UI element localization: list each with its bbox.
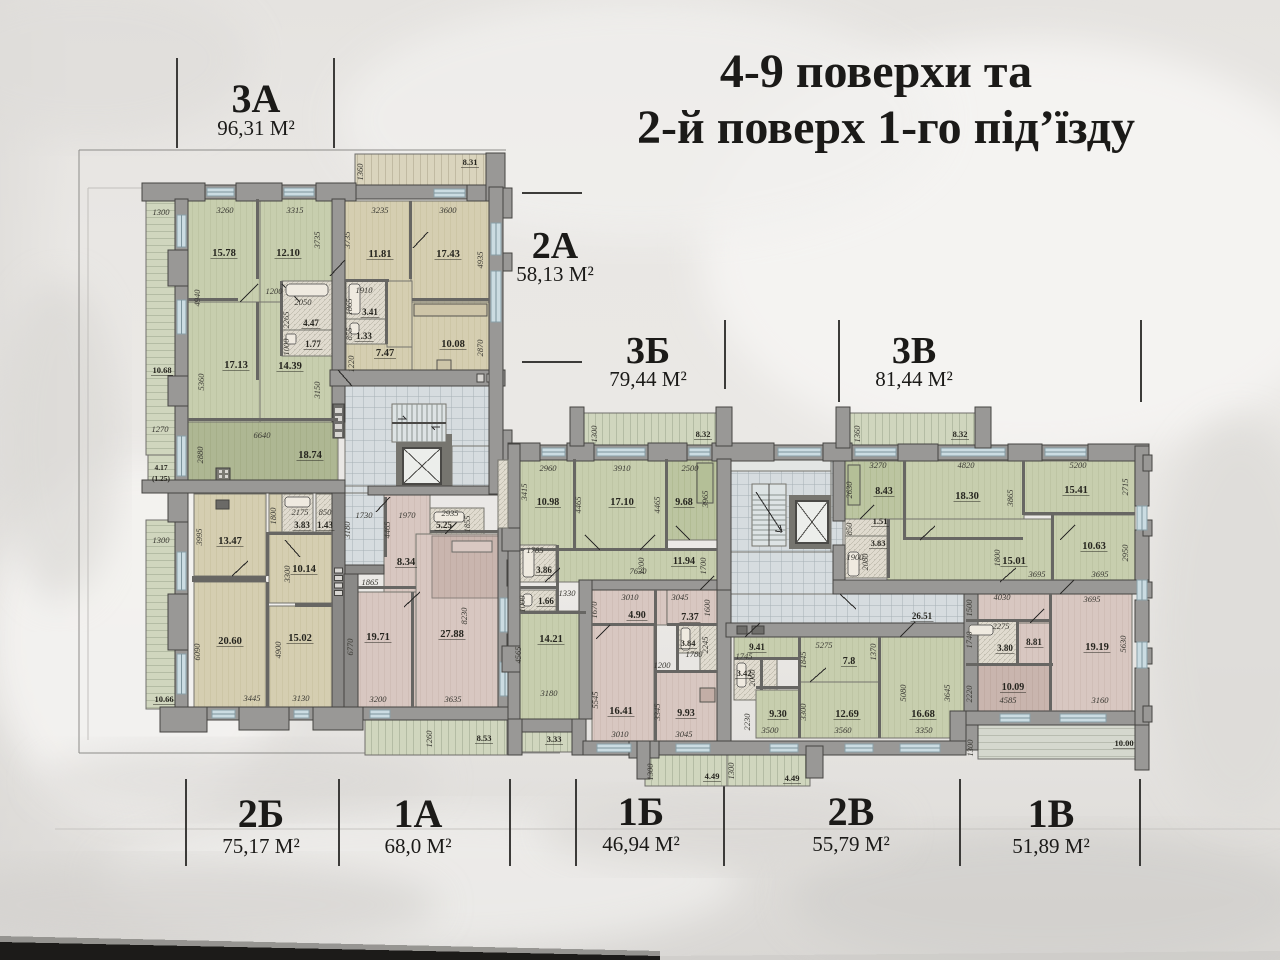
- svg-text:2245: 2245: [700, 637, 710, 654]
- svg-text:10.14: 10.14: [292, 564, 316, 575]
- svg-text:4465: 4465: [573, 497, 583, 514]
- svg-text:7.8: 7.8: [843, 656, 856, 667]
- svg-text:4.47: 4.47: [303, 318, 319, 328]
- svg-text:8.32: 8.32: [953, 429, 968, 439]
- svg-text:3010: 3010: [621, 592, 640, 602]
- svg-text:1670: 1670: [589, 601, 599, 619]
- svg-text:3180: 3180: [540, 688, 559, 698]
- svg-text:3350: 3350: [915, 725, 934, 735]
- svg-text:3695: 3695: [1091, 569, 1109, 579]
- svg-text:4935: 4935: [475, 252, 485, 269]
- svg-text:2060: 2060: [747, 669, 757, 687]
- svg-text:2880: 2880: [195, 446, 205, 464]
- svg-text:10.66: 10.66: [154, 694, 173, 704]
- svg-text:2-й поверх 1-го під’їзду: 2-й поверх 1-го під’їзду: [637, 101, 1135, 154]
- svg-text:12.10: 12.10: [276, 248, 300, 259]
- svg-text:10.09: 10.09: [1002, 682, 1025, 693]
- svg-text:7.37: 7.37: [681, 612, 699, 623]
- svg-text:68,0 М²: 68,0 М²: [385, 834, 452, 858]
- svg-text:5200: 5200: [1070, 460, 1088, 470]
- svg-text:2715: 2715: [1120, 479, 1130, 496]
- svg-text:1.51: 1.51: [873, 516, 888, 526]
- svg-text:4465: 4465: [382, 522, 392, 539]
- svg-text:1970: 1970: [399, 510, 417, 520]
- svg-text:18.74: 18.74: [298, 450, 322, 461]
- svg-text:17.10: 17.10: [610, 497, 634, 508]
- svg-text:8230: 8230: [459, 607, 469, 625]
- svg-text:5080: 5080: [898, 684, 908, 702]
- svg-text:1300: 1300: [726, 762, 736, 780]
- svg-text:20.60: 20.60: [218, 636, 242, 647]
- svg-text:3415: 3415: [519, 484, 529, 502]
- svg-text:3910: 3910: [613, 463, 632, 473]
- svg-text:(1.25): (1.25): [152, 474, 171, 483]
- svg-text:3А: 3А: [232, 76, 281, 121]
- svg-text:3150: 3150: [312, 381, 322, 400]
- svg-text:1.33: 1.33: [356, 331, 372, 341]
- svg-text:10.98: 10.98: [537, 497, 560, 508]
- svg-text:1200: 1200: [654, 660, 672, 670]
- svg-text:1000: 1000: [281, 338, 291, 356]
- svg-text:1700: 1700: [698, 557, 708, 575]
- svg-text:8.53: 8.53: [477, 733, 492, 743]
- svg-text:12.69: 12.69: [835, 709, 859, 720]
- svg-text:3635: 3635: [444, 694, 462, 704]
- svg-text:1300: 1300: [153, 207, 171, 217]
- svg-text:8.31: 8.31: [463, 157, 478, 167]
- svg-text:9.68: 9.68: [675, 497, 693, 508]
- svg-text:3735: 3735: [342, 232, 352, 250]
- svg-text:8.32: 8.32: [696, 429, 711, 439]
- svg-text:10.63: 10.63: [1082, 541, 1106, 552]
- svg-text:1370: 1370: [868, 643, 878, 661]
- svg-text:3695: 3695: [1028, 569, 1046, 579]
- svg-text:14.21: 14.21: [539, 634, 563, 645]
- svg-text:8.81: 8.81: [1026, 637, 1042, 647]
- svg-text:1800: 1800: [268, 507, 278, 525]
- svg-text:26.51: 26.51: [912, 611, 933, 621]
- svg-text:3735: 3735: [312, 232, 322, 250]
- svg-text:1.77: 1.77: [305, 339, 321, 349]
- svg-text:1200: 1200: [636, 557, 646, 575]
- svg-text:3300: 3300: [798, 703, 808, 722]
- svg-text:6640: 6640: [254, 430, 272, 440]
- svg-text:3965: 3965: [700, 491, 710, 509]
- svg-text:2950: 2950: [1120, 544, 1130, 562]
- svg-text:5360: 5360: [196, 373, 206, 391]
- svg-text:3695: 3695: [1083, 594, 1101, 604]
- svg-text:9.93: 9.93: [677, 708, 695, 719]
- svg-text:3.80: 3.80: [997, 643, 1013, 653]
- svg-text:4.49: 4.49: [705, 771, 720, 781]
- svg-text:27.88: 27.88: [440, 629, 464, 640]
- svg-text:1600: 1600: [702, 599, 712, 617]
- svg-text:850: 850: [844, 522, 854, 536]
- svg-text:10.08: 10.08: [441, 339, 465, 350]
- svg-text:1260: 1260: [424, 730, 434, 748]
- svg-text:15.78: 15.78: [212, 248, 236, 259]
- svg-text:3645: 3645: [942, 685, 952, 703]
- svg-text:9.30: 9.30: [769, 709, 787, 720]
- svg-text:3160: 3160: [1091, 695, 1110, 705]
- svg-text:4.90: 4.90: [628, 610, 646, 621]
- svg-text:4820: 4820: [958, 460, 976, 470]
- svg-text:19.19: 19.19: [1085, 642, 1109, 653]
- svg-text:10.00: 10.00: [1114, 738, 1133, 748]
- svg-text:3345: 3345: [652, 704, 662, 722]
- svg-text:1360: 1360: [852, 425, 862, 443]
- svg-text:81,44 М²: 81,44 М²: [875, 367, 952, 391]
- svg-text:58,13 М²: 58,13 М²: [516, 262, 593, 286]
- svg-text:3500: 3500: [761, 725, 780, 735]
- svg-text:1845: 1845: [798, 652, 808, 669]
- svg-text:2050: 2050: [295, 297, 313, 307]
- svg-text:1.66: 1.66: [538, 596, 554, 606]
- svg-text:51,89 М²: 51,89 М²: [1012, 834, 1089, 858]
- svg-text:4-9 поверхи та: 4-9 поверхи та: [720, 45, 1032, 98]
- svg-text:1745: 1745: [736, 651, 753, 661]
- svg-text:3010: 3010: [611, 729, 630, 739]
- svg-text:1740: 1740: [964, 631, 974, 649]
- svg-text:96,31 М²: 96,31 М²: [217, 116, 294, 140]
- svg-text:1300: 1300: [153, 535, 171, 545]
- svg-text:3Б: 3Б: [626, 330, 670, 372]
- svg-text:5.25: 5.25: [436, 520, 452, 530]
- svg-text:1330: 1330: [559, 588, 577, 598]
- svg-text:11.94: 11.94: [673, 556, 695, 567]
- svg-text:1300: 1300: [965, 739, 975, 757]
- svg-text:5545: 5545: [590, 692, 600, 709]
- svg-text:2220: 2220: [964, 685, 974, 703]
- svg-text:4900: 4900: [273, 641, 283, 659]
- svg-text:2080: 2080: [860, 553, 870, 571]
- svg-text:4465: 4465: [652, 497, 662, 514]
- svg-text:55,79 М²: 55,79 М²: [812, 832, 889, 856]
- svg-text:6770: 6770: [345, 638, 355, 656]
- svg-text:1220: 1220: [346, 355, 356, 373]
- svg-text:3.83: 3.83: [871, 538, 886, 548]
- svg-text:1855: 1855: [462, 516, 472, 533]
- svg-text:15.01: 15.01: [1002, 556, 1026, 567]
- svg-text:855: 855: [344, 328, 354, 341]
- svg-text:1.43: 1.43: [317, 520, 333, 530]
- svg-text:11.81: 11.81: [368, 249, 391, 260]
- svg-text:1730: 1730: [356, 510, 374, 520]
- svg-text:4940: 4940: [192, 289, 202, 307]
- svg-text:3270: 3270: [869, 460, 888, 470]
- svg-text:1300: 1300: [645, 763, 655, 781]
- svg-text:3235: 3235: [371, 205, 389, 215]
- svg-text:3200: 3200: [369, 694, 388, 704]
- svg-text:1300: 1300: [589, 425, 599, 443]
- svg-text:16.68: 16.68: [911, 709, 935, 720]
- svg-text:2265: 2265: [281, 312, 291, 329]
- svg-text:850: 850: [319, 507, 333, 517]
- svg-text:75,17 М²: 75,17 М²: [222, 834, 299, 858]
- svg-text:3.83: 3.83: [294, 520, 310, 530]
- svg-text:2А: 2А: [532, 225, 579, 267]
- svg-text:3.84: 3.84: [681, 638, 697, 648]
- svg-text:46,94 М²: 46,94 М²: [602, 832, 679, 856]
- svg-text:3560: 3560: [834, 725, 853, 735]
- svg-text:15.02: 15.02: [288, 633, 312, 644]
- svg-text:4030: 4030: [994, 592, 1012, 602]
- svg-text:3445: 3445: [243, 693, 261, 703]
- svg-text:16.41: 16.41: [609, 706, 633, 717]
- svg-text:5275: 5275: [816, 640, 833, 650]
- svg-text:15.41: 15.41: [1064, 485, 1088, 496]
- svg-text:1500: 1500: [964, 599, 974, 617]
- svg-text:3.41: 3.41: [362, 307, 378, 317]
- svg-text:1200: 1200: [266, 286, 284, 296]
- svg-text:2500: 2500: [682, 463, 700, 473]
- svg-text:2230: 2230: [742, 713, 752, 731]
- svg-text:4.49: 4.49: [785, 773, 800, 783]
- svg-text:2275: 2275: [993, 621, 1010, 631]
- svg-text:2960: 2960: [540, 463, 558, 473]
- svg-text:3995: 3995: [194, 529, 204, 547]
- svg-text:18.30: 18.30: [955, 491, 979, 502]
- svg-text:17.13: 17.13: [224, 360, 248, 371]
- svg-text:3.86: 3.86: [536, 565, 552, 575]
- svg-text:2870: 2870: [475, 339, 485, 357]
- svg-text:3В: 3В: [892, 330, 936, 372]
- svg-text:1865: 1865: [362, 577, 379, 587]
- svg-text:2Б: 2Б: [238, 791, 284, 836]
- svg-text:14.39: 14.39: [278, 361, 302, 372]
- svg-text:5630: 5630: [1118, 635, 1128, 653]
- svg-text:19.71: 19.71: [366, 632, 390, 643]
- svg-text:13.47: 13.47: [218, 536, 242, 547]
- svg-text:2630: 2630: [844, 481, 854, 499]
- svg-text:3865: 3865: [1005, 490, 1015, 508]
- svg-text:1Б: 1Б: [618, 789, 664, 834]
- svg-text:4585: 4585: [1000, 695, 1017, 705]
- svg-text:3045: 3045: [675, 729, 693, 739]
- svg-text:1910: 1910: [356, 285, 374, 295]
- svg-text:4.17: 4.17: [154, 463, 167, 472]
- svg-text:4565: 4565: [513, 647, 523, 664]
- svg-text:2935: 2935: [442, 508, 459, 518]
- svg-text:6090: 6090: [192, 643, 202, 661]
- svg-text:2В: 2В: [828, 789, 875, 834]
- svg-text:1800: 1800: [992, 549, 1002, 567]
- svg-text:79,44 М²: 79,44 М²: [609, 367, 686, 391]
- svg-text:1В: 1В: [1028, 791, 1075, 836]
- svg-text:3130: 3130: [292, 693, 311, 703]
- svg-text:8.43: 8.43: [875, 486, 893, 497]
- svg-text:1270: 1270: [152, 424, 170, 434]
- svg-text:1000: 1000: [517, 595, 527, 613]
- svg-text:3.33: 3.33: [547, 734, 562, 744]
- svg-text:7.47: 7.47: [376, 348, 394, 359]
- svg-text:1865: 1865: [344, 299, 354, 316]
- svg-text:3600: 3600: [439, 205, 458, 215]
- svg-text:3300: 3300: [282, 565, 292, 584]
- svg-text:3315: 3315: [286, 205, 304, 215]
- svg-text:3180: 3180: [342, 521, 352, 540]
- svg-text:1785: 1785: [527, 545, 544, 555]
- svg-text:10.68: 10.68: [152, 365, 171, 375]
- svg-text:3260: 3260: [216, 205, 235, 215]
- svg-text:8.34: 8.34: [397, 557, 416, 568]
- svg-text:1А: 1А: [394, 791, 443, 836]
- svg-text:3045: 3045: [671, 592, 689, 602]
- svg-text:2175: 2175: [292, 507, 309, 517]
- svg-text:17.43: 17.43: [436, 249, 460, 260]
- svg-text:1360: 1360: [355, 163, 365, 181]
